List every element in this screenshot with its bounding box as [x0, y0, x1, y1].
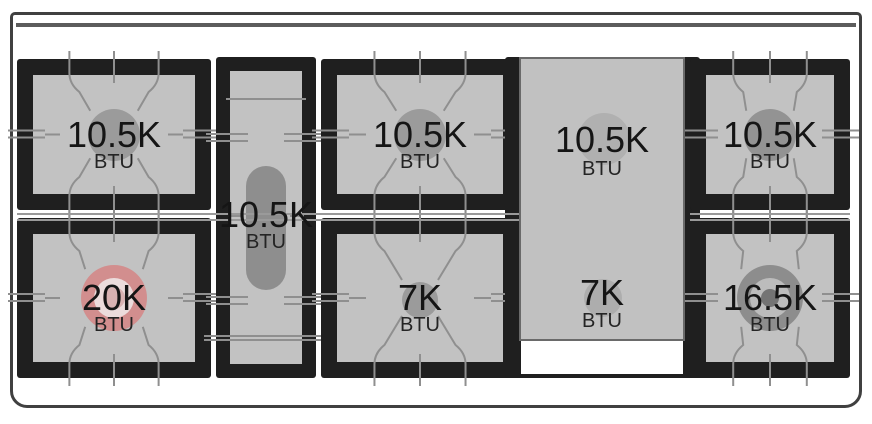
burner-well-left-top: 10.5K BTU [17, 59, 211, 210]
burner-unit-label: BTU [17, 152, 211, 172]
grate-tick [206, 133, 248, 135]
burner-well-middle-top: 10.5K BTU [321, 59, 519, 210]
griddle-plate: 10.5K BTU 7K BTU [519, 57, 685, 341]
grate-tick [284, 133, 326, 135]
burner-well-right-bottom: 16.5K BTU [690, 218, 850, 378]
burner-unit-label: BTU [321, 152, 519, 172]
grate-tick [284, 296, 326, 298]
burner-btu-label: 7K [321, 278, 519, 318]
grate-tick [284, 303, 326, 305]
burner-unit-label: BTU [690, 315, 850, 335]
burner-btu-label: 10.5K [216, 197, 316, 233]
griddle-cutout [521, 341, 683, 374]
burner-btu-label: 10.5K [690, 115, 850, 155]
cooktop-diagram: 10.5K BTU 20K BTU 10.5K BTU 10.5K [0, 0, 872, 424]
grate-rail-line [690, 213, 850, 215]
grate-line [204, 335, 328, 337]
burner-well-middle-bottom: 7K BTU [321, 218, 519, 378]
grate-tick [206, 303, 248, 305]
burner-btu-label: 20K [17, 278, 211, 318]
grate-rail-line [690, 219, 850, 221]
burner-unit-label: BTU [321, 315, 519, 335]
burner-well-oval: 10.5K BTU [216, 57, 316, 378]
burner-unit-label: BTU [521, 159, 683, 179]
burner-btu-label: 16.5K [690, 278, 850, 318]
burner-well-right-top: 10.5K BTU [690, 59, 850, 210]
burner-btu-label: 10.5K [321, 115, 519, 155]
burner-unit-label: BTU [17, 315, 211, 335]
grate-tick [284, 140, 326, 142]
back-rail-lines [16, 23, 856, 27]
grate-tick [206, 140, 248, 142]
burner-btu-label: 10.5K [521, 122, 683, 158]
grate-line [204, 339, 328, 341]
burner-btu-label: 7K [521, 275, 683, 311]
grate-line [226, 98, 306, 100]
burner-unit-label: BTU [521, 311, 683, 331]
burner-unit-label: BTU [690, 152, 850, 172]
burner-well-left-bottom: 20K BTU [17, 218, 211, 378]
burner-unit-label: BTU [216, 232, 316, 252]
burner-btu-label: 10.5K [17, 115, 211, 155]
grate-tick [206, 296, 248, 298]
